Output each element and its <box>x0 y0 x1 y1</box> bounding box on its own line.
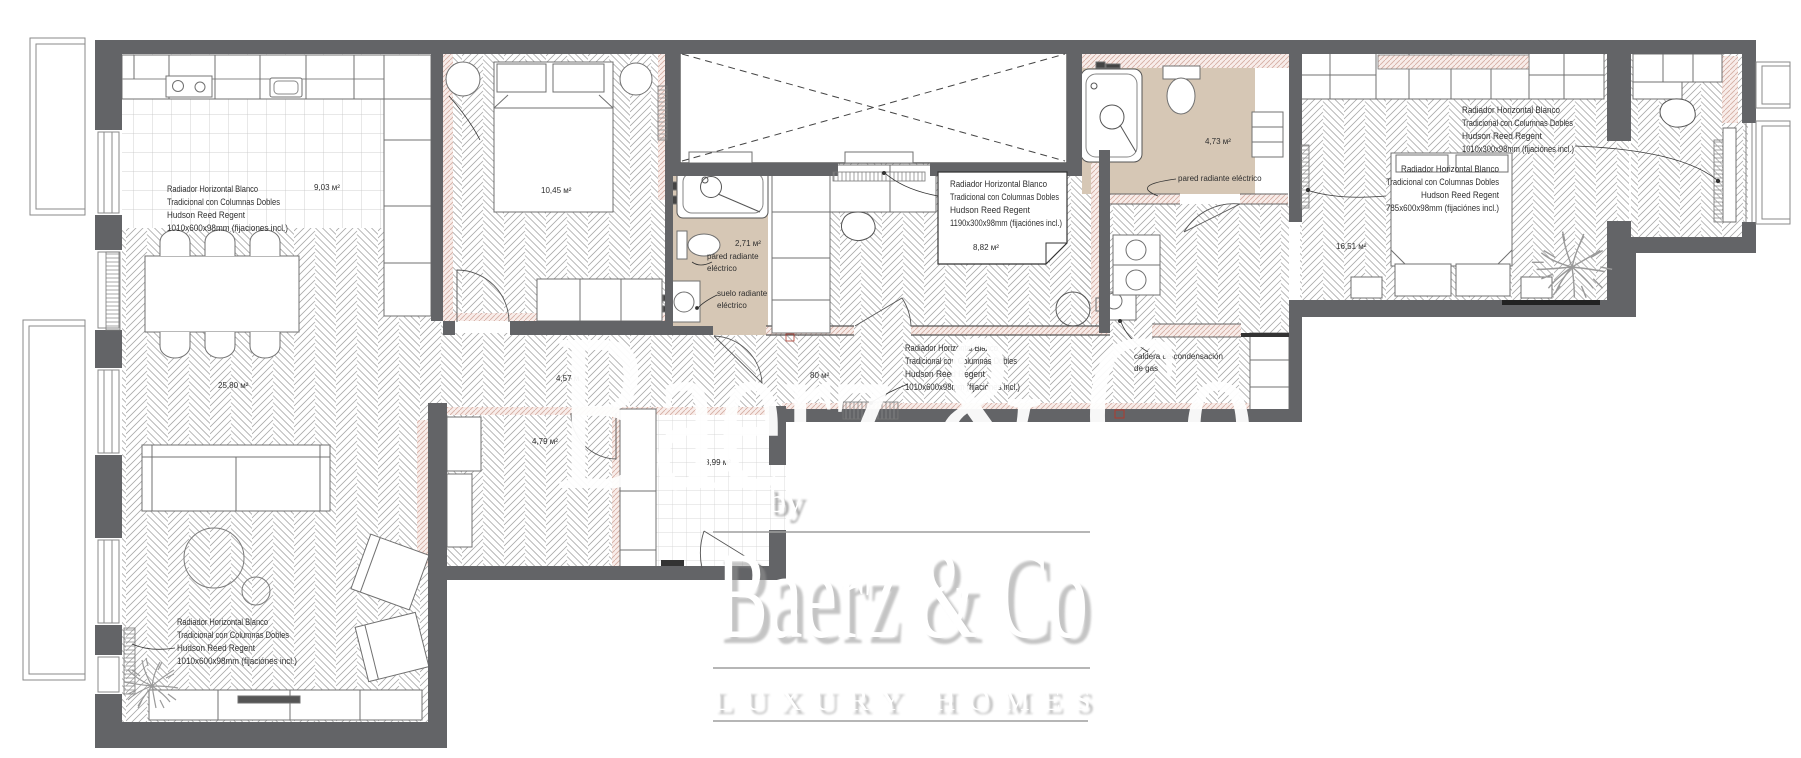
svg-text:785x600x98mm (fijaciónes incl.: 785x600x98mm (fijaciónes incl.) <box>1386 203 1499 213</box>
svg-text:Tradicional con Columnas Doble: Tradicional con Columnas Dobles <box>1462 118 1573 128</box>
svg-text:Radiador Horizontal Blanco: Radiador Horizontal Blanco <box>167 184 258 194</box>
svg-text:8,82 м²: 8,82 м² <box>973 243 999 252</box>
svg-text:Tradicional con Columnas Doble: Tradicional con Columnas Dobles <box>950 192 1059 202</box>
svg-text:Hudson Reed Regent: Hudson Reed Regent <box>1462 131 1542 141</box>
svg-text:25,80 м²: 25,80 м² <box>218 381 249 390</box>
svg-text:eléctrico: eléctrico <box>707 264 737 273</box>
svg-text:Tradicional con Columnas Doble: Tradicional con Columnas Dobles <box>1386 177 1499 187</box>
svg-text:Radiador Horizontal Blanco: Radiador Horizontal Blanco <box>1401 164 1499 174</box>
svg-text:Baerz & Co: Baerz & Co <box>555 287 1255 537</box>
svg-text:9,03 м²: 9,03 м² <box>314 183 340 192</box>
svg-text:1010x600x98mm (fijaciónes incl: 1010x600x98mm (fijaciónes incl.) <box>177 656 297 666</box>
svg-text:Tradicional con Columnas Doble: Tradicional con Columnas Dobles <box>177 630 289 640</box>
svg-text:Hudson Reed Regent: Hudson Reed Regent <box>167 210 245 220</box>
svg-text:Hudson Reed Regent: Hudson Reed Regent <box>177 643 255 653</box>
svg-text:2,71 м²: 2,71 м² <box>735 239 761 248</box>
svg-text:by: by <box>769 483 803 520</box>
svg-text:16,51 м²: 16,51 м² <box>1336 242 1367 251</box>
svg-text:10,45 м²: 10,45 м² <box>541 186 572 195</box>
svg-text:4,73 м²: 4,73 м² <box>1205 137 1231 146</box>
svg-text:1190x300x98mm (fijaciónes incl: 1190x300x98mm (fijaciónes incl.) <box>950 218 1062 228</box>
svg-text:Hudson Reed Regent: Hudson Reed Regent <box>950 205 1030 215</box>
svg-text:Radiador Horizontal Blanco: Radiador Horizontal Blanco <box>177 617 268 627</box>
svg-text:1010x600x98mm (fijaciones incl: 1010x600x98mm (fijaciones incl.) <box>167 223 288 233</box>
svg-text:Tradicional con Columnas Doble: Tradicional con Columnas Dobles <box>167 197 280 207</box>
svg-text:1010x300x98mm (fijaciónes incl: 1010x300x98mm (fijaciónes incl.) <box>1462 144 1574 154</box>
svg-text:Radiador Horizontal Blanco: Radiador Horizontal Blanco <box>1462 105 1560 115</box>
svg-text:Hudson Reed Regent: Hudson Reed Regent <box>1421 190 1499 200</box>
svg-text:Radiador Horizontal Blanco: Radiador Horizontal Blanco <box>950 179 1047 189</box>
svg-text:Baerz & Co: Baerz & Co <box>716 527 1088 664</box>
svg-text:pared radiante: pared radiante <box>707 252 759 261</box>
svg-text:pared radiante eléctrico: pared radiante eléctrico <box>1178 174 1262 183</box>
